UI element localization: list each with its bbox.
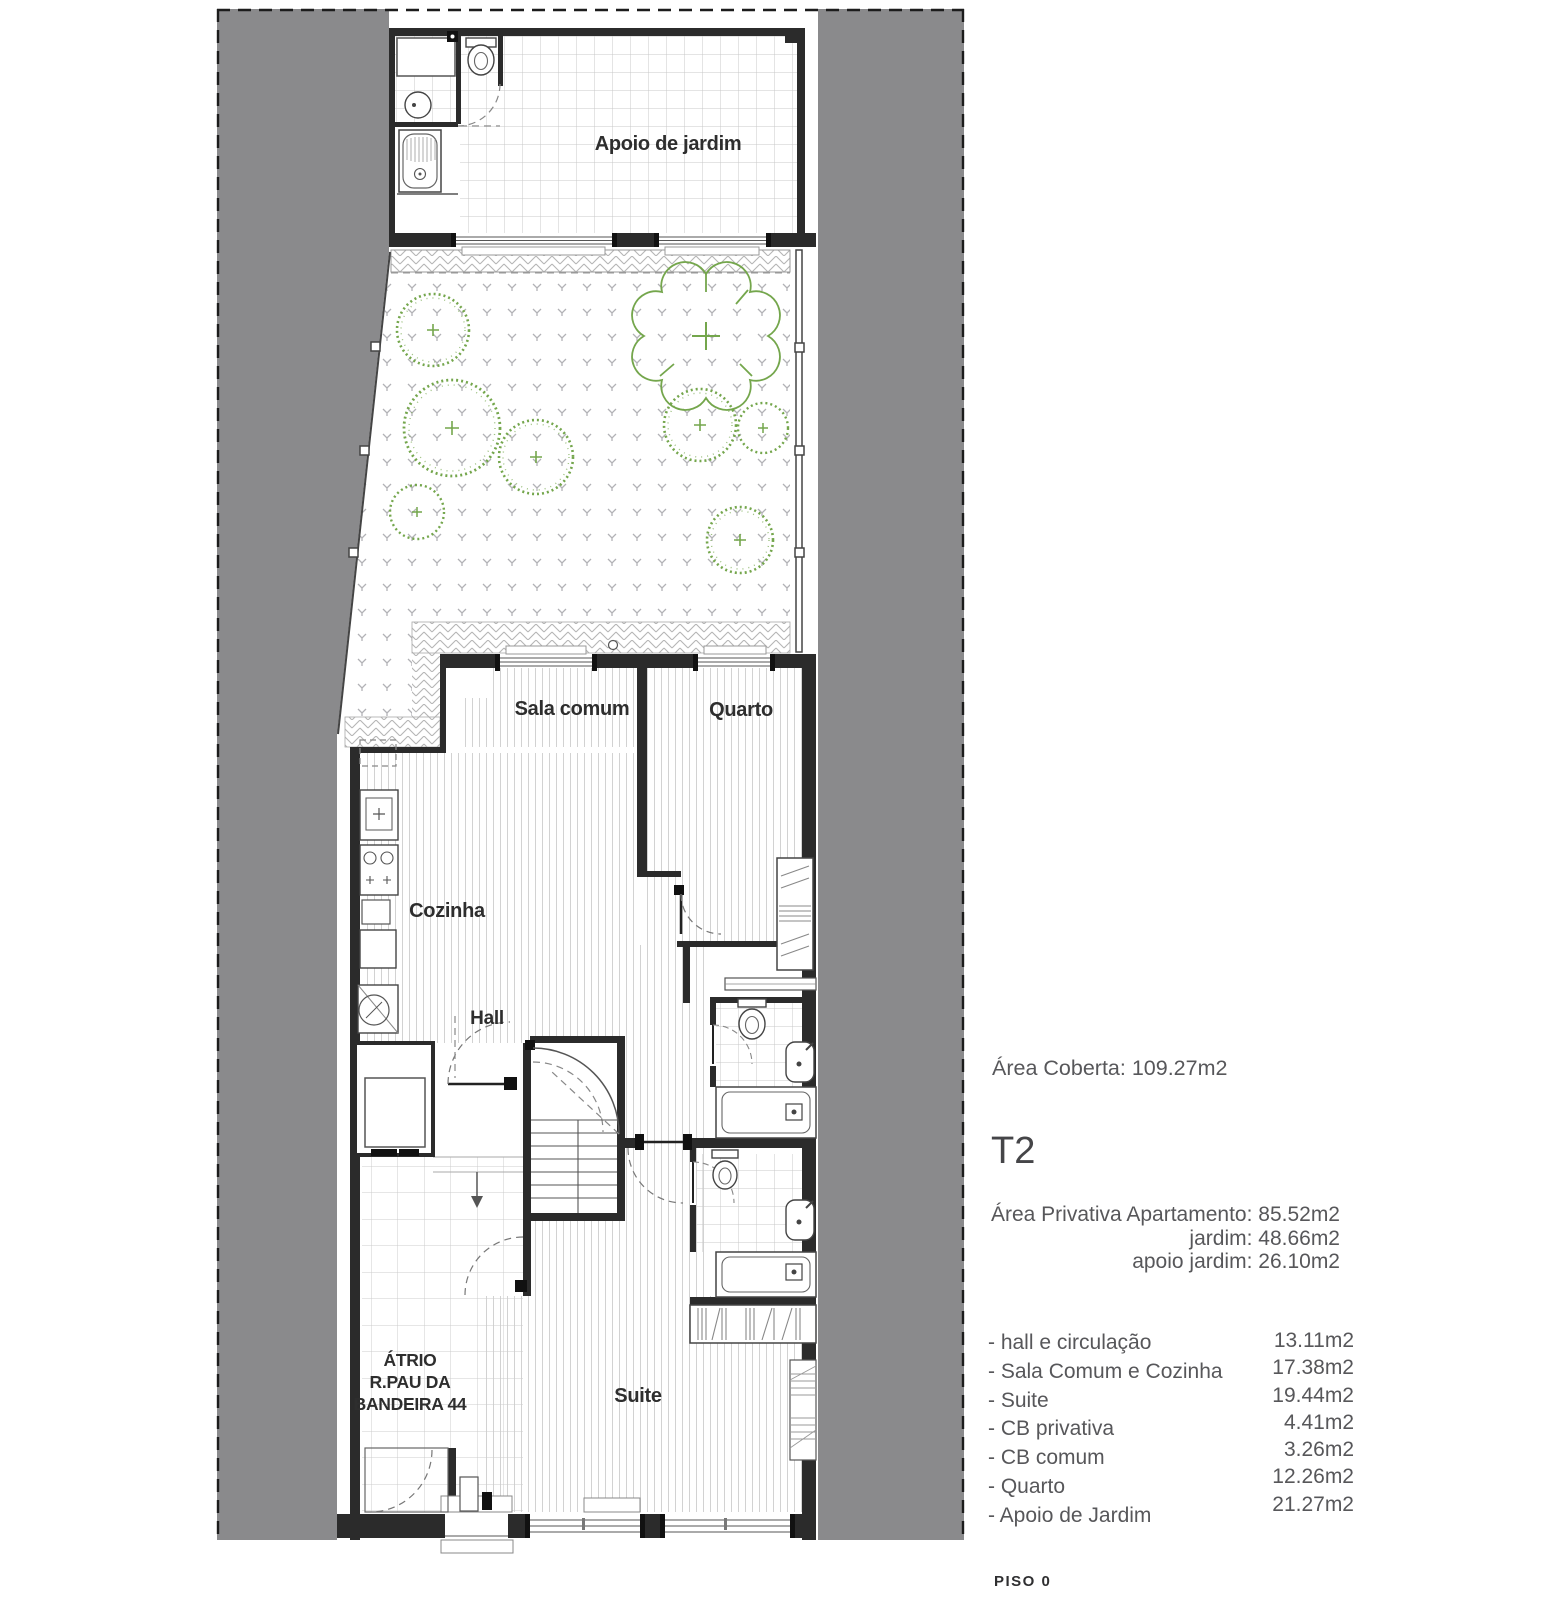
- label-atrio-2: R.PAU DA: [370, 1372, 452, 1392]
- label-sala-comum: Sala comum: [515, 698, 630, 720]
- room-area-value: 17.38m2: [1000, 1354, 1354, 1381]
- sala-cozinha-floor: [362, 753, 637, 1043]
- kitchen-sink-icon: [360, 790, 398, 840]
- elevator-shaft: [355, 1043, 433, 1156]
- toilet-icon: [738, 999, 766, 1039]
- room-area-value: 4.41m2: [1000, 1409, 1354, 1436]
- room-area-value: 12.26m2: [1000, 1463, 1354, 1490]
- drain-icon: [609, 641, 618, 650]
- floor-level-label: PISO 0: [994, 1573, 1051, 1590]
- room-area-value: 21.27m2: [1000, 1491, 1354, 1518]
- terrace-strip-corner: [412, 653, 440, 717]
- washbasin-icon: [786, 1042, 814, 1082]
- washbasin-icon: [786, 1200, 814, 1240]
- private-areas-block: Área Privativa Apartamento: 85.52m2 jard…: [950, 1203, 1340, 1274]
- private-area-line: Área Privativa Apartamento: 85.52m2: [950, 1203, 1340, 1227]
- label-cozinha: Cozinha: [409, 900, 486, 922]
- stove-icon: [360, 845, 398, 895]
- room-area-value: 19.44m2: [1000, 1382, 1354, 1409]
- bathtub-icon: [399, 130, 441, 192]
- covered-area-text: Área Coberta: 109.27m2: [992, 1056, 1227, 1081]
- shelf-unit: [790, 1360, 816, 1460]
- laundry-sink-icon: [358, 985, 398, 1033]
- toilet-icon: [466, 38, 496, 75]
- label-atrio-3: BANDEIRA 44: [354, 1394, 467, 1414]
- main-building: [337, 646, 816, 1553]
- toilet-icon: [712, 1150, 738, 1189]
- cb-privativa-floor: [696, 1154, 802, 1252]
- room-areas-values: 13.11m2 17.38m2 19.44m2 4.41m2 3.26m2 12…: [1000, 1327, 1354, 1518]
- floor-plan-page: { "plan": { "rooms": { "apoio_de_jardim"…: [0, 0, 1556, 1609]
- entry-step: [441, 1540, 513, 1553]
- suite-closet: [690, 1305, 816, 1343]
- label-quarto: Quarto: [709, 699, 773, 721]
- shower-tray-icon: [397, 38, 455, 76]
- label-apoio-de-jardim: Apoio de jardim: [595, 133, 742, 155]
- terrace-strip-left: [345, 717, 440, 747]
- bathtub-icon: [716, 1087, 816, 1138]
- bathtub-icon: [716, 1252, 816, 1297]
- sink-icon: [405, 92, 431, 118]
- atrio-floor: [362, 1157, 523, 1512]
- room-area-value: 3.26m2: [1000, 1436, 1354, 1463]
- room-area-value: 13.11m2: [1000, 1327, 1354, 1354]
- label-suite: Suite: [614, 1385, 662, 1407]
- typology-title: T2: [991, 1130, 1035, 1173]
- quarto-wardrobe: [777, 858, 813, 970]
- label-hall: Hall: [470, 1008, 504, 1029]
- private-area-line: apoio jardim: 26.10m2: [950, 1250, 1340, 1274]
- neighbor-band-right: [818, 9, 964, 1540]
- label-atrio-1: ÁTRIO: [384, 1349, 437, 1370]
- private-area-line: jardim: 48.66m2: [950, 1227, 1340, 1251]
